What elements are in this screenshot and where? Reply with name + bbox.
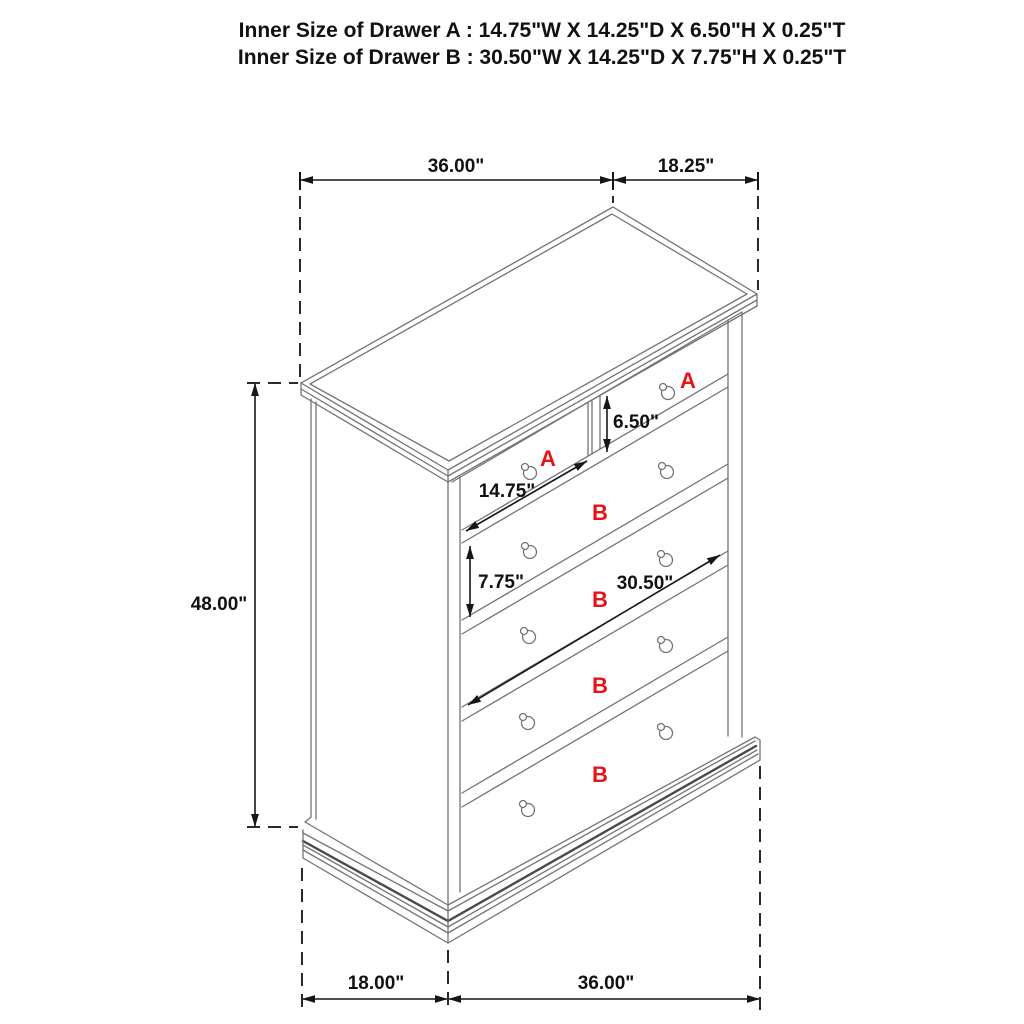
drawer-knob (520, 714, 535, 730)
drawer-divider (588, 395, 600, 456)
drawer-b-width-value: 30.50" (617, 573, 674, 594)
top-depth-value: 18.25" (658, 156, 715, 177)
cabinet-top (301, 207, 757, 483)
technical-drawing: Inner Size of Drawer A : 14.75"W X 14.25… (0, 0, 1024, 1024)
furniture-dimension-diagram: Inner Size of Drawer A : 14.75"W X 14.25… (0, 0, 1024, 1024)
drawer-knob (522, 543, 537, 559)
drawer-knob (658, 724, 673, 740)
drawer-b2-label: B (592, 587, 608, 612)
top-width-value: 36.00" (428, 156, 485, 177)
base-depth-value: 18.00" (348, 973, 405, 994)
dimension-top-width: 36.00" (300, 156, 613, 180)
drawer-a-width-value: 14.75" (479, 481, 536, 502)
drawer-b3-label: B (592, 673, 608, 698)
drawer-knob (658, 637, 673, 653)
dimension-overall-height: 48.00" (191, 383, 298, 827)
drawer-a-inner-size-title: Inner Size of Drawer A : 14.75"W X 14.25… (239, 19, 846, 42)
extension-lines-top (300, 172, 758, 378)
drawer-knob (660, 384, 675, 400)
drawer-b-height-value: 7.75" (478, 572, 524, 593)
drawer-knob (520, 801, 535, 817)
face-top-edge (452, 312, 742, 482)
drawer-knob (659, 463, 674, 479)
drawer-a-left-label: A (540, 446, 556, 471)
drawer-b1-label: B (592, 500, 608, 525)
dimension-base-width: 36.00" (448, 973, 760, 999)
drawer-knob (522, 464, 537, 480)
drawer-knob (521, 628, 536, 644)
base-molding (303, 737, 760, 943)
dimension-drawer-b-height: 7.75" (470, 546, 524, 617)
base-width-value: 36.00" (578, 973, 635, 994)
drawer-a-height-value: 6.50" (613, 412, 659, 433)
dimension-top-depth: 18.25" (613, 156, 758, 180)
overall-height-value: 48.00" (191, 594, 248, 615)
drawer-a-right-label: A (680, 368, 696, 393)
dimension-base-depth: 18.00" (302, 973, 448, 999)
dimension-drawer-a-height: 6.50" (607, 396, 659, 452)
drawer-b4-label: B (592, 762, 608, 787)
drawer-b-inner-size-title: Inner Size of Drawer B : 30.50"W X 14.25… (238, 46, 846, 69)
drawer-knob (658, 551, 673, 567)
